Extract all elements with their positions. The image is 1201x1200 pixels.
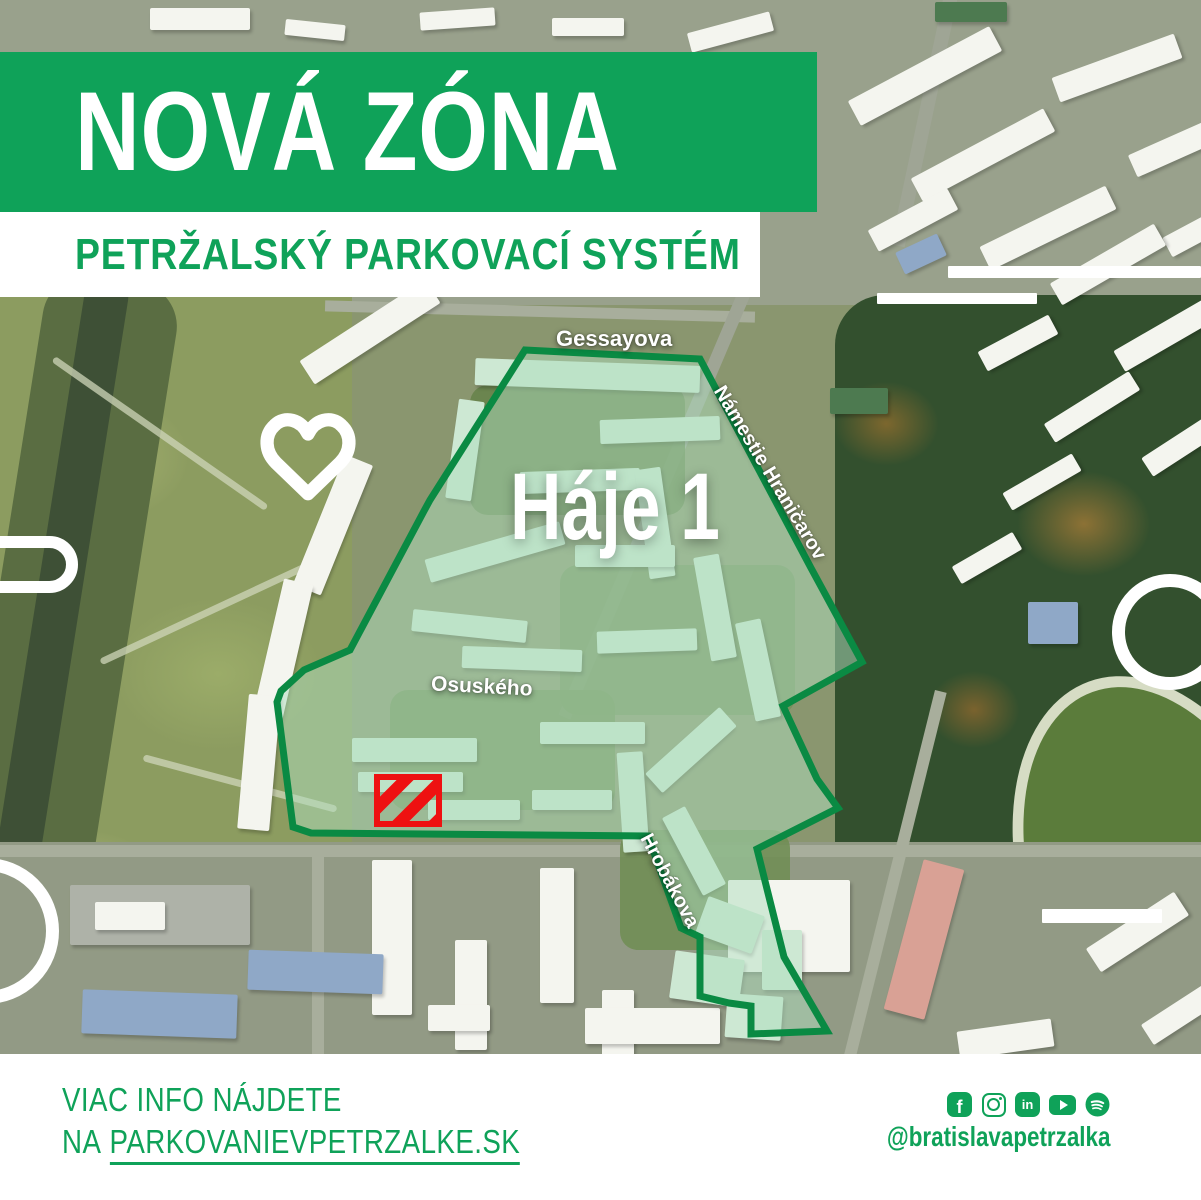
map-building	[830, 388, 888, 414]
map-building	[247, 950, 383, 995]
instagram-lens	[987, 1098, 1000, 1111]
map-building	[1051, 34, 1182, 103]
info-text-line2: NA PARKOVANIEVPETRZALKE.SK	[62, 1122, 607, 1162]
linkedin-icon[interactable]: in	[1015, 1092, 1040, 1117]
map-building	[428, 1005, 490, 1031]
spotify-icon[interactable]	[1085, 1092, 1110, 1117]
poster: Háje 1 Gessayova Námestie Hraničarov Osu…	[0, 0, 1201, 1200]
map-building	[952, 532, 1023, 584]
social-handle: @bratislavapetrzalka	[831, 1122, 1110, 1152]
map-building	[978, 315, 1059, 372]
instagram-dot	[999, 1097, 1002, 1100]
instagram-frame	[982, 1093, 1006, 1117]
info-text-line1: VIAC INFO NÁJDETE	[62, 1080, 395, 1120]
street-label-gessayova: Gessayova	[556, 326, 672, 352]
map-building	[725, 993, 784, 1041]
pill-outline-decoration	[0, 536, 78, 593]
map-building	[895, 233, 947, 274]
info-link-prefix: NA	[62, 1123, 101, 1160]
map-building	[762, 930, 802, 990]
subtitle-bar: PETRŽALSKÝ PARKOVACÍ SYSTÉM	[0, 212, 760, 297]
map-building	[411, 609, 528, 643]
website-link[interactable]: PARKOVANIEVPETRZALKE.SK	[109, 1123, 520, 1165]
zone-banner: NOVÁ ZÓNA	[0, 52, 817, 212]
map-building	[95, 902, 165, 930]
dash-decoration	[877, 293, 1037, 304]
map-building	[687, 11, 774, 52]
youtube-icon[interactable]	[1049, 1095, 1076, 1115]
map-building	[1141, 409, 1201, 476]
banner-title: NOVÁ ZÓNA	[0, 76, 756, 188]
map-building	[597, 628, 698, 653]
map-building	[911, 108, 1056, 201]
map-building	[462, 646, 583, 672]
map-building	[475, 358, 701, 393]
map-building	[1141, 975, 1201, 1045]
heart-outline-icon	[252, 403, 364, 507]
map-building	[735, 618, 781, 721]
map-building	[532, 790, 612, 810]
map-building	[1113, 296, 1201, 372]
map-building	[868, 188, 959, 251]
map-building	[1086, 892, 1189, 973]
subtitle-text: PETRŽALSKÝ PARKOVACÍ SYSTÉM	[0, 233, 858, 277]
instagram-icon[interactable]	[981, 1092, 1006, 1117]
map-building	[1044, 371, 1140, 443]
map-building	[1028, 602, 1078, 644]
facebook-icon[interactable]: f	[947, 1092, 972, 1117]
map-building	[600, 416, 721, 444]
map-building	[358, 772, 463, 792]
play-triangle	[1060, 1100, 1068, 1110]
map-building	[352, 738, 477, 762]
dash-decoration	[1042, 909, 1162, 923]
social-icons-row: f in	[947, 1092, 1110, 1117]
map-building	[284, 19, 345, 41]
map-building	[935, 2, 1007, 22]
map-building	[428, 800, 520, 820]
map-building	[848, 26, 1002, 126]
map-building	[150, 8, 250, 30]
map-building	[1162, 195, 1201, 258]
map-building	[1002, 453, 1081, 510]
zone-name-label: Háje 1	[510, 460, 790, 555]
map-building	[540, 722, 645, 744]
dash-decoration	[948, 266, 1201, 278]
map-building	[540, 868, 574, 1003]
map-building	[419, 7, 495, 30]
map-building	[552, 18, 624, 36]
map-building	[237, 694, 281, 831]
map-building	[81, 989, 237, 1038]
map-building	[1128, 111, 1201, 178]
map-building	[884, 859, 965, 1020]
map-building	[585, 1008, 720, 1044]
map-building	[693, 554, 737, 662]
map-building	[455, 940, 487, 1050]
map-building	[645, 707, 737, 793]
map-building	[445, 399, 485, 502]
map-building	[1050, 224, 1166, 306]
